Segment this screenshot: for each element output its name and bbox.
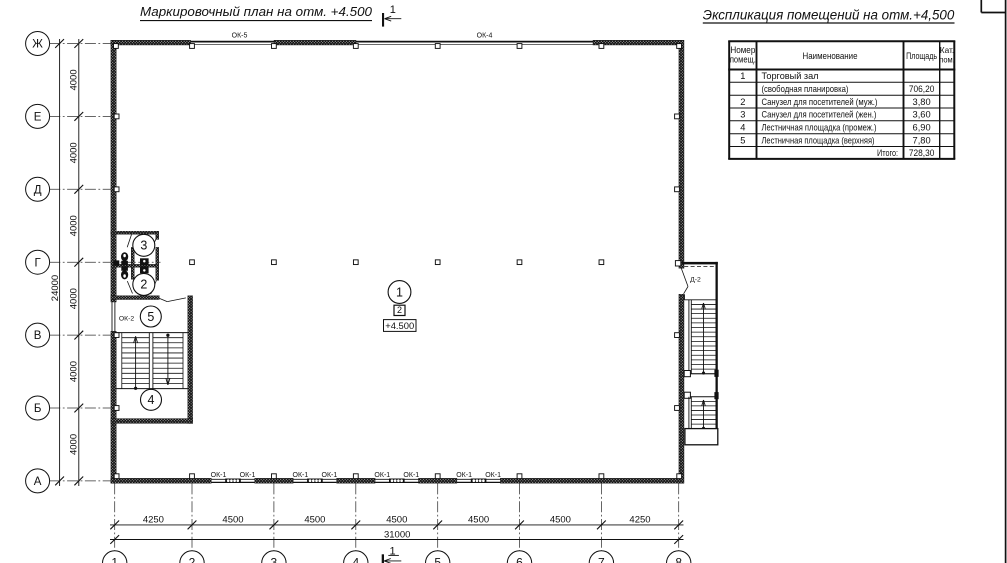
svg-text:ОК-5: ОК-5	[232, 33, 248, 40]
svg-text:31000: 31000	[384, 529, 410, 540]
svg-text:2: 2	[740, 97, 745, 107]
svg-text:ОК-1: ОК-1	[456, 472, 472, 479]
svg-text:ОК-1: ОК-1	[403, 472, 419, 479]
svg-text:ОК-2: ОК-2	[119, 316, 135, 323]
svg-text:6: 6	[516, 556, 523, 563]
svg-text:3: 3	[140, 239, 147, 253]
svg-text:В: В	[34, 330, 42, 342]
svg-text:Наименование: Наименование	[803, 51, 858, 61]
svg-text:1: 1	[111, 556, 118, 563]
svg-text:1: 1	[390, 4, 396, 16]
svg-text:4500: 4500	[222, 515, 243, 526]
svg-text:ОК-1: ОК-1	[485, 472, 501, 479]
svg-text:Кат.: Кат.	[940, 45, 955, 55]
svg-text:пом.: пом.	[939, 55, 955, 65]
svg-text:Б: Б	[34, 403, 42, 415]
svg-text:Площадь: Площадь	[906, 51, 937, 61]
svg-text:2: 2	[140, 278, 147, 292]
svg-text:4000: 4000	[69, 288, 80, 309]
svg-text:4250: 4250	[629, 515, 650, 526]
svg-text:Д-2: Д-2	[690, 277, 701, 284]
svg-text:24000: 24000	[50, 275, 61, 301]
svg-text:ОК-1: ОК-1	[322, 472, 338, 479]
svg-text:Санузел для посетителей (жен.): Санузел для посетителей (жен.)	[762, 110, 877, 120]
svg-text:Экспликация помещений на отм.+: Экспликация помещений на отм.+4,500	[703, 7, 955, 22]
svg-text:3,80: 3,80	[913, 97, 931, 107]
svg-text:8: 8	[675, 556, 682, 563]
svg-text:Г: Г	[34, 257, 41, 269]
svg-text:помещ.: помещ.	[730, 55, 756, 65]
svg-text:ОК-1: ОК-1	[211, 472, 227, 479]
svg-text:(свободная планировка): (свободная планировка)	[762, 84, 849, 94]
svg-text:4: 4	[352, 556, 359, 563]
svg-text:Е: Е	[34, 112, 42, 124]
svg-text:4250: 4250	[143, 515, 164, 526]
svg-text:4500: 4500	[550, 515, 571, 526]
svg-text:Торговый зал: Торговый зал	[762, 71, 819, 81]
svg-text:Итого:: Итого:	[877, 148, 898, 158]
svg-text:ОК-4: ОК-4	[477, 33, 493, 40]
svg-text:А: А	[34, 476, 42, 488]
svg-text:2: 2	[189, 556, 196, 563]
svg-text:6,90: 6,90	[913, 122, 931, 132]
svg-text:Санузел для посетителей (муж.): Санузел для посетителей (муж.)	[762, 97, 878, 107]
svg-text:1: 1	[396, 285, 403, 299]
svg-text:4000: 4000	[69, 142, 80, 163]
svg-text:Лестничная площадка (промеж.): Лестничная площадка (промеж.)	[762, 122, 877, 132]
svg-text:5: 5	[434, 556, 441, 563]
svg-text:Маркировочный план на отм. +4.: Маркировочный план на отм. +4.500	[140, 5, 372, 19]
svg-text:2: 2	[397, 305, 402, 315]
svg-text:5: 5	[147, 310, 154, 324]
svg-text:7,80: 7,80	[913, 135, 931, 145]
svg-text:3: 3	[740, 110, 745, 120]
svg-text:ОК-1: ОК-1	[240, 472, 256, 479]
svg-text:4: 4	[740, 122, 745, 132]
svg-text:ОК-1: ОК-1	[374, 472, 390, 479]
svg-text:+4.500: +4.500	[385, 320, 414, 331]
svg-text:4000: 4000	[69, 361, 80, 382]
svg-text:4500: 4500	[386, 515, 407, 526]
svg-text:Номер: Номер	[730, 45, 755, 55]
svg-text:4000: 4000	[69, 434, 80, 455]
svg-text:5: 5	[740, 135, 745, 145]
svg-text:4000: 4000	[69, 215, 80, 236]
svg-text:4: 4	[148, 393, 155, 407]
svg-text:Лестничная площадка (верхняя): Лестничная площадка (верхняя)	[762, 135, 875, 145]
svg-text:ОК-1: ОК-1	[293, 472, 309, 479]
svg-text:1: 1	[740, 71, 745, 81]
svg-text:706,20: 706,20	[909, 84, 935, 94]
svg-text:7: 7	[598, 556, 605, 563]
svg-text:Ж: Ж	[32, 39, 43, 51]
svg-text:728,30: 728,30	[909, 148, 935, 158]
svg-text:3,60: 3,60	[913, 110, 931, 120]
svg-text:4000: 4000	[69, 69, 80, 90]
svg-text:4500: 4500	[468, 515, 489, 526]
svg-text:3: 3	[271, 556, 278, 563]
svg-text:4500: 4500	[304, 515, 325, 526]
svg-text:Д: Д	[34, 184, 42, 196]
